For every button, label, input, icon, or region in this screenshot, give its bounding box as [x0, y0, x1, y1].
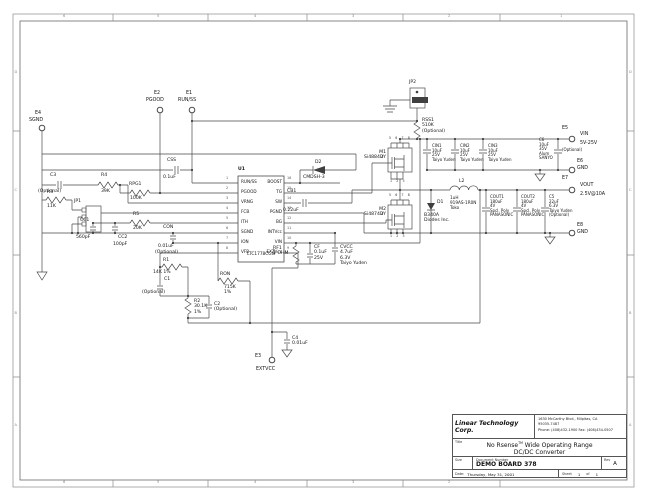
label-line: 1% — [224, 290, 236, 295]
terminal-e3 — [269, 357, 275, 363]
cc1-ref: CC1 — [80, 218, 89, 223]
con-val: 0.01uF — [158, 244, 174, 249]
pin-num: 12 — [287, 217, 291, 220]
label-line: 30.1K — [194, 304, 207, 309]
terminal-e4 — [39, 125, 45, 131]
pin-num: 16 — [287, 177, 291, 180]
e6-name: GND — [577, 166, 588, 172]
e7-ref: E7 — [562, 176, 568, 182]
zone-row: C — [629, 189, 632, 193]
label-line: SANYO — [539, 156, 553, 161]
e1-name: RUN/SS — [178, 98, 196, 104]
pin-num: 8 — [226, 247, 228, 250]
l2-label: 1uH 919AS-1R0N Toko — [450, 196, 476, 210]
label-line: 1% — [194, 310, 207, 315]
zone-col: 1 — [560, 15, 562, 19]
cb1-val: 0.22uF — [283, 208, 299, 213]
pin-num: 11 — [287, 227, 291, 230]
address-line: Phone: (408)432-1900 Fax: (408)434-0507 — [538, 428, 626, 433]
cf-label: CF 0.1uF 25V — [314, 245, 327, 261]
m2-pins-bottom: 1 2 3 — [390, 235, 406, 238]
zone-col: 6 — [63, 15, 65, 19]
company-name: Linear Technology Corp. — [453, 415, 535, 438]
date-cell: Date: Thursday, May 31, 2001 — [453, 470, 559, 478]
title-text: Wide Operating Range — [523, 442, 593, 449]
pin-name: TG — [243, 190, 282, 194]
sheet-num: 1 — [578, 472, 580, 477]
pin-num: 1 — [226, 177, 228, 180]
e8-ref: E8 — [577, 223, 583, 229]
label-line: PANASONIC — [521, 213, 544, 218]
wires-path — [37, 100, 569, 357]
m2-gate-pin: 4 — [381, 213, 385, 216]
label-line: 0.01uF — [292, 341, 308, 346]
pin-name: INTVcc — [243, 230, 282, 234]
c2-label: C2 (Optional) — [214, 302, 237, 313]
label-line: 0.1uF — [314, 250, 327, 255]
pin-num: 7 — [226, 237, 228, 240]
r3-val: 11K — [47, 204, 56, 209]
zone-col: 5 — [157, 15, 159, 19]
cout1-label: COUT1 180uF 4V Spcl. Poly PANASONIC — [490, 195, 513, 218]
m1-body — [388, 148, 412, 172]
c5-label: C5 22uF 6.3V Taiyo Yuden (Optional) — [549, 195, 572, 218]
label-line: Toko — [450, 206, 476, 211]
sheet-label: Sheet — [562, 472, 572, 476]
r3-ref: R3 — [47, 190, 53, 195]
rev-value: A — [604, 462, 626, 468]
con-ref: CON — [163, 225, 173, 230]
date-label: Date: — [455, 472, 464, 476]
e5-ref: E5 — [562, 126, 568, 132]
jp2-ref: JP2 — [409, 80, 416, 85]
m2-body — [388, 205, 412, 229]
of-label: of — [586, 472, 589, 476]
label-line: Taiyo Yuden — [460, 158, 483, 163]
zone-col: 3 — [352, 15, 354, 19]
pin-num: 5 — [226, 217, 228, 220]
e8-name: GND — [577, 230, 588, 236]
e5-name: VIN — [580, 132, 588, 138]
terminal-e2 — [157, 107, 163, 113]
zone-col: 4 — [254, 15, 256, 19]
c1-ref: C1 — [164, 277, 170, 282]
cc2-ref: CC2 — [118, 235, 127, 240]
jp1-pin1 — [82, 208, 86, 212]
label-line: (Optional) — [549, 213, 572, 218]
con-note: (Optional) — [155, 250, 178, 255]
rpg1-val: 100K — [130, 196, 142, 201]
r5-val: 20K — [133, 226, 142, 231]
terminal-e7 — [569, 187, 575, 193]
terminal-e5 — [569, 136, 575, 142]
e1-ref: E1 — [186, 91, 192, 97]
css-ref: CSS — [167, 158, 176, 163]
zone-col: 4 — [254, 481, 256, 485]
schematic-title: No RsenseTM Wide Operating Range DC/DC C… — [453, 442, 626, 456]
jp2-pin-dot — [416, 91, 419, 94]
l2-ref: L2 — [459, 179, 464, 184]
cc1-val: 560pF — [76, 235, 90, 240]
label-line: 1 OHM — [273, 251, 288, 256]
cb1-ref: CB1 — [287, 189, 296, 194]
zone-row: D — [629, 71, 632, 75]
zone-col: 2 — [448, 481, 450, 485]
c6-note: (Optional) — [562, 148, 582, 153]
e6-ref: E6 — [577, 159, 583, 165]
d1-ref: D1 — [437, 200, 443, 205]
title-block-row-title: Title No RsenseTM Wide Operating Range D… — [453, 439, 626, 457]
pin-num: 10 — [287, 237, 291, 240]
zone-col: 3 — [352, 481, 354, 485]
label-line: PANASONIC — [490, 213, 513, 218]
m1-pins-bottom: 1 2 3 — [390, 180, 406, 183]
pin-name: BOOST — [243, 180, 282, 184]
label-line: (Optional) — [422, 129, 445, 134]
zone-row: C — [15, 189, 18, 193]
diode-fills — [313, 166, 435, 210]
terminal-e1 — [189, 107, 195, 113]
e2-ref: E2 — [154, 91, 160, 97]
cin1-label: CIN1 10uF 25V Taiyo Yuden — [432, 144, 455, 162]
zone-col: 5 — [157, 481, 159, 485]
doc-cell: Document Number DEMO BOARD 378 — [473, 457, 602, 469]
r4-val: 39K — [101, 189, 110, 194]
title-block-row-doc: Size Document Number DEMO BOARD 378 Rev … — [453, 457, 626, 470]
e5-desc: 5V-25V — [580, 141, 597, 147]
r1-ref: R1 — [163, 258, 169, 263]
c4-label: C4 0.01uF — [292, 336, 308, 347]
label-line: Taiyo Yuden — [432, 158, 455, 163]
cin3-label: CIN3 10uF 25V Taiyo Yuden — [488, 144, 511, 162]
zone-col: 6 — [63, 481, 65, 485]
r2-label: R2 30.1K 1% — [194, 299, 207, 315]
c3-ref: C3 — [50, 173, 56, 178]
title-block-row-company: Linear Technology Corp. 1630 McCarthy Bl… — [453, 415, 626, 439]
jp2-shunt — [412, 97, 428, 103]
terminal-e6 — [569, 167, 575, 173]
zone-row: B — [15, 312, 17, 316]
date-value: Thursday, May 31, 2001 — [467, 472, 514, 477]
title-text-line2: DC/DC Converter — [453, 449, 626, 456]
d2-val: CMDSH-3 — [303, 175, 325, 180]
m1-pins-top: 5 6 7 8 — [389, 137, 411, 140]
pin-name: PGND — [243, 210, 282, 214]
ron-val: 715K 1% — [224, 285, 236, 296]
pin-num: 14 — [287, 197, 291, 200]
zone-row: D — [15, 71, 18, 75]
u1-ref: U1 — [238, 167, 245, 172]
label-line: (Optional) — [214, 307, 237, 312]
pin-num: 6 — [226, 227, 228, 230]
e4-ref: E4 — [35, 111, 41, 117]
pin-num: 2 — [226, 187, 228, 190]
schematic-sheet: 6 5 4 3 2 1 6 5 4 3 2 D C B A D C B A E1… — [0, 0, 647, 500]
d1-label: B340A Diodes Inc. — [424, 213, 449, 224]
pin-name: BG — [243, 220, 282, 224]
label-line: Diodes Inc. — [424, 218, 449, 223]
cc2-val: 100pF — [113, 242, 127, 247]
label-line: 25V — [314, 256, 327, 261]
cin2-label: CIN2 10uF 25V Taiyo Yuden — [460, 144, 483, 162]
pin-num: 3 — [226, 197, 228, 200]
m2-pins-top: 5 6 7 8 — [389, 194, 411, 197]
zone-row: A — [15, 424, 17, 428]
rss1-label: RSS1 510K (Optional) — [422, 118, 445, 134]
size-label: Size — [453, 457, 473, 469]
e7-desc: 2.5V@10A — [580, 192, 605, 198]
doc-number: DEMO BOARD 378 — [476, 462, 601, 468]
zone-row: A — [629, 424, 631, 428]
title-text: No Rsense — [486, 442, 518, 449]
zone-col: 2 — [448, 15, 450, 19]
cout2-label: COUT2 180uF 4V Spcl. Poly PANASONIC — [521, 195, 544, 218]
c1-val: (Optional) — [142, 290, 165, 295]
e3-ref: E3 — [255, 354, 261, 360]
e4-name: SGND — [29, 118, 43, 124]
jp1-ref: JP1 — [74, 199, 81, 204]
d2-ref: D2 — [315, 160, 321, 165]
ron-ref: RON — [220, 272, 230, 277]
c6-label: C6 10uF 35V Alum SANYO — [539, 138, 553, 161]
label-line: Taiyo Yuden — [488, 158, 511, 163]
r1-val: 14K 1% — [153, 270, 171, 275]
sheet-total: 1 — [596, 472, 598, 477]
cvcc-label: CVCC 4.7uF 6.3V Taiyo Yuden — [340, 245, 367, 266]
pin-name: SW — [243, 200, 282, 204]
r4-ref: R4 — [101, 173, 107, 178]
r5-ref: R5 — [133, 212, 139, 217]
label-line: Taiyo Yuden — [340, 261, 367, 266]
css-val: 0.1uF — [163, 175, 176, 180]
e7-name: VOUT — [580, 183, 593, 189]
terminal-e8 — [569, 230, 575, 236]
title-block-row-date: Date: Thursday, May 31, 2001 Sheet 1 of … — [453, 470, 626, 478]
zone-row: B — [629, 312, 631, 316]
rev-cell: Rev A — [602, 457, 626, 469]
rpg1-ref: RPG1 — [129, 182, 141, 187]
company-address: 1630 McCarthy Blvd., Milpitas, CA 95035-… — [535, 415, 626, 438]
sheet-cell: Sheet 1 of 1 — [559, 472, 626, 477]
title-block: Linear Technology Corp. 1630 McCarthy Bl… — [452, 414, 627, 478]
rf1-label: RF1 1 OHM — [273, 246, 288, 257]
m1-gate-pin: 4 — [381, 156, 385, 159]
pin-num: 4 — [226, 207, 228, 210]
pin-name: VIN — [243, 240, 282, 244]
e3-name: EXTVCC — [256, 367, 275, 373]
e2-name: PGOOD — [146, 98, 164, 104]
